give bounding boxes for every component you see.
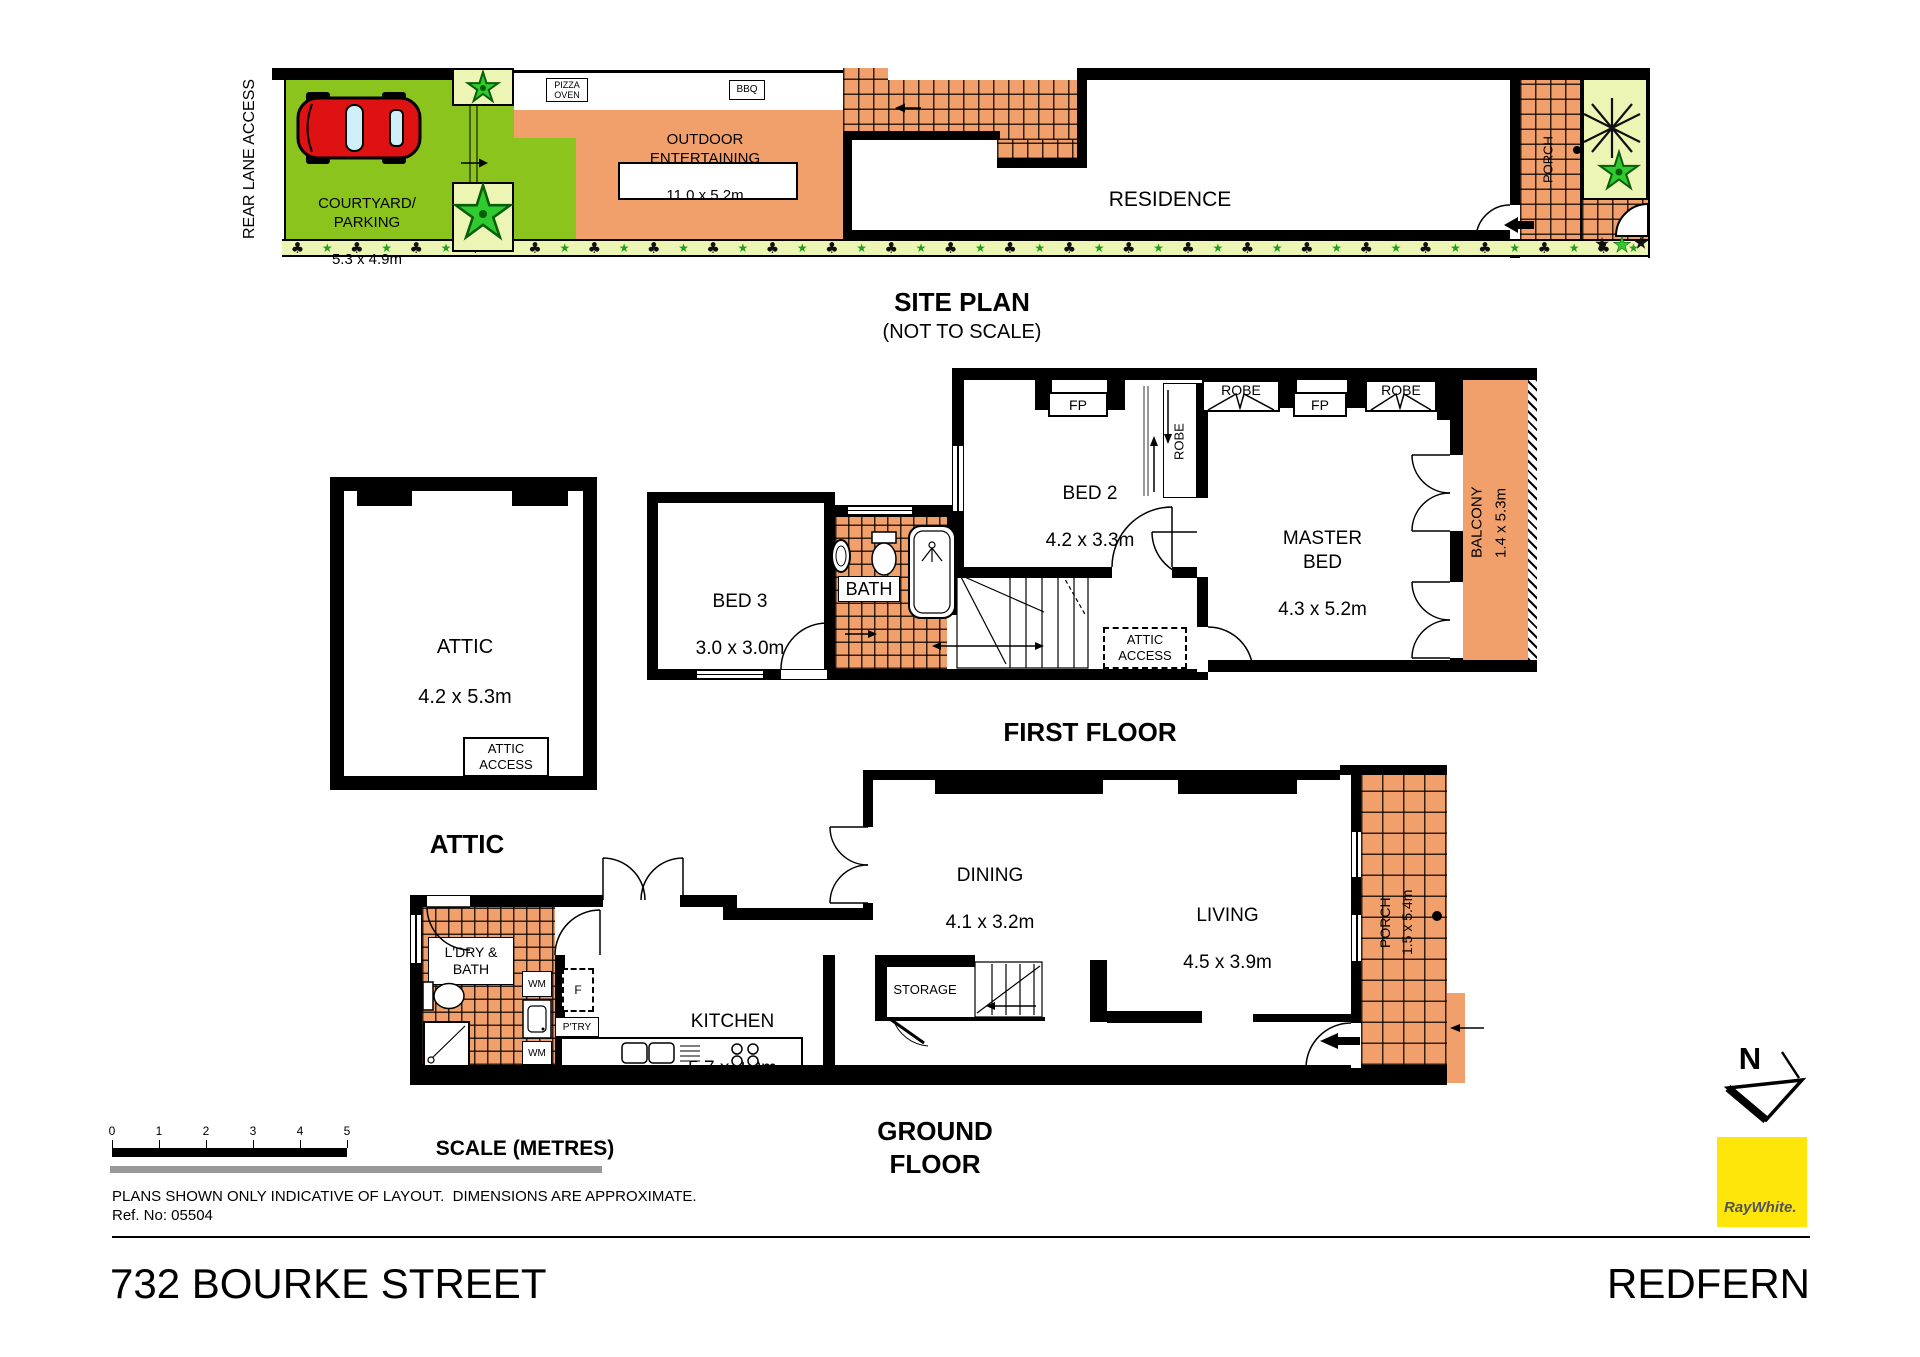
ff-wall [647,492,835,503]
master-name: MASTER BED [1235,527,1410,575]
bed3-dims: 3.0 x 3.0m [660,637,820,661]
ff-wall [647,492,658,680]
gf-wall [1107,1011,1202,1023]
gf-fridge-box: F [562,968,594,1012]
site-planter-bottom [452,182,514,252]
ff-balcony-hatch [1528,380,1537,660]
site-wall [1077,68,1648,80]
gf-ldry-window [410,915,422,963]
site-wall [272,68,453,80]
scale-tickmark [347,1140,348,1148]
gf-wall [723,895,737,920]
gf-storage-door [890,1019,928,1046]
rear-lane-access-label: REAR LANE ACCESS [240,78,260,240]
master-bed-label: MASTER BED 4.3 x 5.2m [1235,503,1410,646]
ff-bath-label-box: BATH [838,576,900,602]
address-text: 732 BOURKE STREET [110,1258,710,1311]
storage-label: STORAGE [878,982,972,998]
gf-wall [823,955,835,1065]
ground-floor-title: GROUND FLOOR [835,1115,1035,1180]
ff-wall [1202,368,1537,380]
gf-wall [875,1017,1045,1021]
site-wall [1580,70,1582,252]
scale-tick-2: 2 [196,1124,216,1139]
ff-wall [952,511,964,569]
living-dims: 4.5 x 3.9m [1135,951,1320,975]
attic-notch [512,491,568,506]
first-floor-title: FIRST FLOOR [990,716,1190,749]
scale-tickmark [112,1140,113,1148]
gf-stairs-arrowhead [986,1002,995,1010]
scale-tick-3: 3 [243,1124,263,1139]
attic-access-label: ATTIC ACCESS [1118,632,1171,663]
scale-tick-5: 5 [337,1124,357,1139]
attic-title: ATTIC [377,828,557,861]
gf-wall [410,895,540,907]
ref-number: Ref. No: 05504 [112,1207,412,1226]
ff-robe2-box: ROBE [1365,380,1437,412]
site-plan-subtitle: (NOT TO SCALE) [862,320,1062,345]
gf-wall [410,1065,1447,1085]
living-label: LIVING 4.5 x 3.9m [1135,880,1320,999]
ff-wall [1208,660,1537,672]
bed2-dims: 4.2 x 3.3m [1000,529,1180,553]
dining-dims: 4.1 x 3.2m [900,911,1080,935]
attic-wall [330,776,597,790]
courtyard-label: COURTYARD/ PARKING 5.3 x 4.9m [287,176,447,289]
residence-label: RESIDENCE [1060,187,1280,213]
kitchen-name: KITCHEN [645,1010,820,1034]
ff-wall [824,503,835,669]
gf-porch-name-label: PORCH [1376,865,1394,980]
gf-pantry-box: P'TRY [555,1017,599,1037]
gf-dining-double-doors [830,827,873,903]
gf-kitchen-double-doors [603,858,683,900]
site-wall [1648,68,1650,258]
courtyard-name: COURTYARD/ PARKING [287,195,447,233]
ldry-bath-label: L'DRY & BATH [445,944,498,978]
scale-tickmark [206,1140,207,1148]
attic-name: ATTIC [380,635,550,660]
gf-hall-door [555,908,600,955]
site-path-tiles-a [843,68,888,140]
bbq-label: BBQ [736,84,757,97]
robe-label: ROBE [1221,382,1261,398]
site-wall [1510,68,1520,258]
scale-tick-0: 0 [102,1124,122,1139]
site-planter-top [452,68,514,106]
gray-divider-bar [110,1166,602,1173]
outdoor-name: OUTDOOR ENTERTAINING [617,131,793,169]
balcony-name-label: BALCONY [1468,450,1486,595]
ff-attic-access-box: ATTIC ACCESS [1103,627,1187,669]
gf-stairs [975,962,1042,1017]
master-dims: 4.3 x 5.2m [1235,598,1410,622]
site-right-garden [1582,70,1648,200]
pizza-oven-box: PIZZA OVEN [546,78,588,102]
wm-label: WM [528,979,546,990]
gf-wall [1340,765,1447,775]
gf-porch-window [1351,832,1361,877]
bed2-name: BED 2 [1000,482,1180,506]
robe-label: ROBE [1381,382,1421,398]
scale-tickmark [253,1140,254,1148]
dining-label: DINING 4.1 x 3.2m [900,840,1080,959]
ff-bed2-window [952,446,964,511]
wm-label: WM [528,1048,546,1059]
ff-robe-vertical-label: ROBE [1172,406,1186,478]
ff-wall [1450,380,1463,455]
attic-access-box: ATTIC ACCESS [463,737,549,777]
bath-label: BATH [846,579,893,600]
site-wall [843,230,1510,239]
gf-wall [1090,960,1107,1022]
courtyard-dims: 5.3 x 4.9m [287,251,447,270]
site-plan-title: SITE PLAN [862,286,1062,319]
gf-wall [1253,1014,1351,1022]
site-porch-label: PORCH [1540,116,1556,204]
dining-name: DINING [900,864,1080,888]
gf-wall [1178,780,1297,794]
ff-wall [952,368,1202,380]
gf-porch-step [1447,993,1465,1083]
bed3-label: BED 3 3.0 x 3.0m [660,566,820,685]
kitchen-dims: 5.7 x 3.0m [645,1057,820,1081]
site-wall [997,158,1087,168]
outdoor-label: OUTDOOR ENTERTAINING 11.0 x 5.2m [617,112,793,225]
attic-wall [330,477,344,790]
attic-room-label: ATTIC 4.2 x 5.3m [380,610,550,735]
site-lawn-block [514,138,576,239]
site-wall [1077,80,1087,158]
scale-title: SCALE (METRES) [430,1136,620,1162]
footer-divider-line [112,1236,1810,1238]
scale-tickmark [159,1140,160,1148]
ff-bath-window [848,506,912,516]
ff-wall [1450,638,1463,660]
attic-notch [357,491,412,506]
fridge-label: F [574,983,581,997]
scale-tick-4: 4 [290,1124,310,1139]
floorplan-page: ♣★♣★♣★♣★♣★♣★♣★♣★♣★♣★♣★♣★♣★♣★♣★♣★♣★♣★♣★♣★… [0,0,1920,1357]
ff-master-fp-box: FP [1293,392,1347,417]
ff-bed2-fp-box: FP [1048,392,1108,417]
gf-wall [540,895,603,907]
gf-porch-dims-label: 1.5 x 5.4m [1398,862,1416,982]
site-path-tiles-c [997,140,1078,159]
site-wall [843,131,1000,140]
gf-porch-window [1351,915,1361,961]
pantry-label: P'TRY [563,1022,591,1033]
north-label: N [1730,1040,1770,1079]
raywhite-logo-text: RayWhite. [1724,1199,1797,1216]
scale-tickmark [300,1140,301,1148]
ff-robe1-box: ROBE [1202,380,1280,412]
pizza-oven-label: PIZZA OVEN [554,80,580,101]
balcony-dims-label: 1.4 x 5.3m [1492,450,1510,595]
gf-ldry-label-box: L'DRY & BATH [428,937,514,985]
bed2-label: BED 2 4.2 x 3.3m [1000,458,1180,577]
scale-tick-1: 1 [149,1124,169,1139]
gf-wm-box: WM [522,1041,552,1065]
gf-wall [737,908,863,920]
gf-wall [935,780,1103,794]
attic-dims: 4.2 x 5.3m [380,685,550,710]
gf-wall [863,770,1340,780]
bed3-name: BED 3 [660,590,820,614]
ff-wall [1450,531,1463,582]
suburb-text: REDFERN [1500,1258,1810,1311]
attic-access-label: ATTIC ACCESS [479,741,532,772]
attic-wall [330,477,597,491]
ff-wall [1107,380,1125,410]
living-name: LIVING [1135,904,1320,928]
gf-wall [863,903,873,920]
kitchen-label: KITCHEN 5.7 x 3.0m [645,986,820,1105]
disclaimer-text: PLANS SHOWN ONLY INDICATIVE OF LAYOUT. D… [112,1188,812,1207]
ff-wall [1197,577,1208,627]
fp-label: FP [1069,397,1087,413]
attic-wall [583,477,597,790]
ff-stairs [957,572,1088,668]
ff-wall [1347,380,1365,408]
fp-label: FP [1311,397,1329,413]
bbq-box: BBQ [729,80,765,100]
outdoor-dims: 11.0 x 5.2m [617,187,793,206]
gf-wm-box: WM [522,971,552,997]
scale-bar [112,1148,347,1157]
